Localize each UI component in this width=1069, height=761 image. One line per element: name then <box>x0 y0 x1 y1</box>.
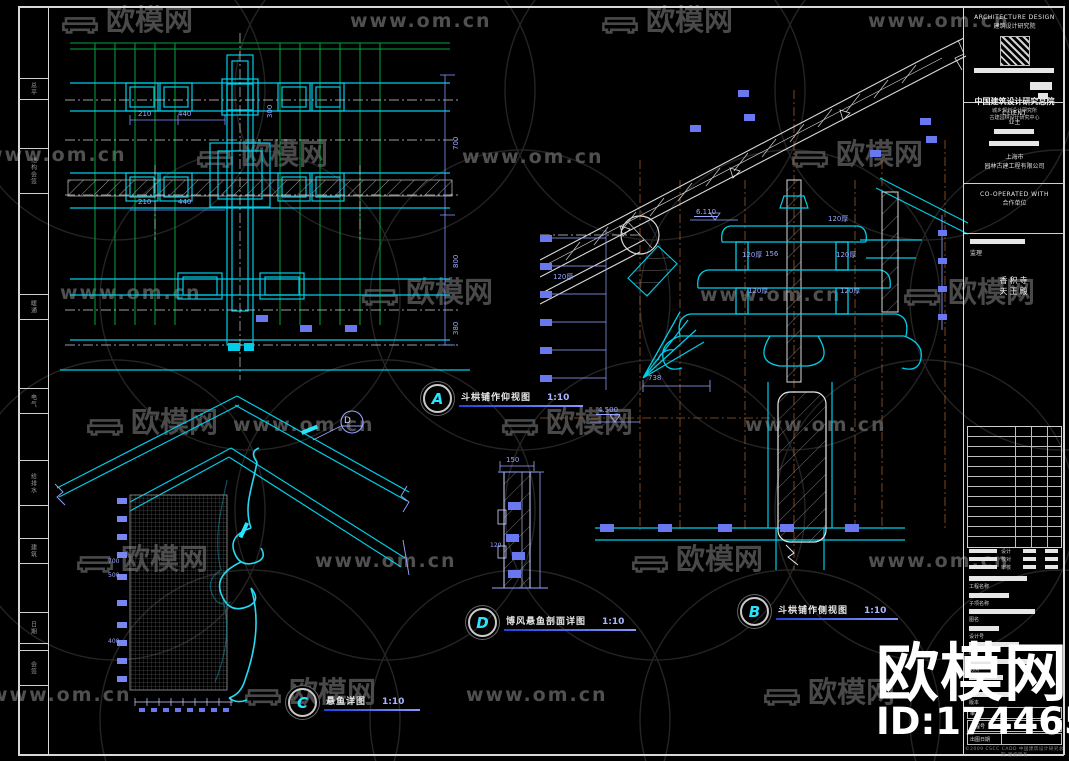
callout-d-letter: D <box>344 416 351 426</box>
margin-cell-label: 会签 <box>29 661 38 675</box>
margin-cell-label: 总平 <box>29 82 38 96</box>
frame-bottom <box>18 754 1064 756</box>
field-row: 工程名称 <box>967 574 1062 590</box>
field-label: 图名 <box>969 616 979 623</box>
titleblock-coop-section: CO-OPERATED WITH 合作单位 <box>964 184 1065 234</box>
margin-cell-label: 结构会签 <box>29 157 38 185</box>
field-label: 工程名称 <box>969 583 989 590</box>
detail-label-d: D 博风悬鱼剖面详图 1:10 <box>468 608 634 637</box>
titleblock-firm-section: ARCHITECTURE DESIGN 建筑设计研究院 中国建筑设计研究总院 城… <box>964 6 1065 103</box>
dim-b-thk1: 120厚 <box>828 214 848 224</box>
dim-a-210: 210 <box>138 110 151 118</box>
detail-bubble-a: A <box>423 384 452 413</box>
dim-a-380: 380 <box>452 322 460 335</box>
drawing-a-bracket-plan <box>60 25 480 390</box>
margin-cell: 总平 <box>18 78 48 100</box>
field-row: 比例 <box>967 657 1062 673</box>
field-label: 版本 <box>969 699 979 706</box>
field-row: 图号 <box>967 640 1062 656</box>
margin-cell-label: 日期 <box>29 621 38 635</box>
dim-a-440: 440 <box>178 110 191 118</box>
detail-label-c: C 悬鱼详图 1:10 <box>288 688 418 717</box>
cad-sheet: 欧模网www.om.cn欧模网www.om.cnwww.om.cn欧模网www.… <box>0 0 1069 761</box>
field-label: 设计号 <box>969 633 984 640</box>
frame-top <box>18 6 1064 8</box>
field-row: 子项名称 <box>967 591 1062 607</box>
field-row: 设计号 <box>967 624 1062 640</box>
margin-cell-label: 建筑 <box>29 544 38 558</box>
drawing-d-bargeboard-section <box>470 450 580 610</box>
margin-cell: 结构会签 <box>18 148 48 194</box>
titleblock-client-section: CLIENT 业主 上海市 园林古建工程有限公司 <box>964 103 1065 184</box>
drawing-c-gable-detail <box>55 390 415 720</box>
detail-title-d: 博风悬鱼剖面详图 <box>506 614 586 627</box>
dim-c-500: 500 <box>108 572 119 579</box>
detail-label-b: B 斗栱铺作侧视图 1:10 <box>740 597 896 626</box>
detail-bubble-d: D <box>468 608 497 637</box>
firm-logo <box>1000 36 1030 66</box>
dim-b-738: 738 <box>648 374 661 382</box>
margin-cell: 给排水 <box>18 460 48 506</box>
margin-cell: 会签 <box>18 650 48 686</box>
coop-header-en: CO-OPERATED WITH <box>964 191 1065 198</box>
client-name2: 园林古建工程有限公司 <box>964 161 1065 170</box>
detail-title-b: 斗栱铺作侧视图 <box>778 603 848 616</box>
supervisor-label: 监理 <box>964 248 1065 257</box>
dim-d-150: 150 <box>506 456 519 464</box>
dim-a-800: 800 <box>452 255 460 268</box>
bottom-box-row: 审定 <box>967 707 1062 719</box>
detail-scale-c: 1:10 <box>382 697 404 707</box>
margin-strip-divider <box>48 6 49 755</box>
dim-a-210b: 210 <box>138 198 151 206</box>
detail-scale-d: 1:10 <box>602 617 624 627</box>
firm-header-en: ARCHITECTURE DESIGN <box>964 14 1065 21</box>
detail-title-a: 斗栱铺作仰视图 <box>461 390 531 403</box>
copyright-line: ©2009 CSCC CADD 中国建筑设计研究总院 版权所有 <box>964 746 1065 758</box>
titleblock-project-section: 监理 香积寺 天王殿 <box>964 234 1065 426</box>
project-name-line1: 香积寺 <box>964 275 1065 286</box>
dim-b-156: 156 <box>765 250 778 258</box>
firm-header-cn: 建筑设计研究院 <box>964 21 1065 30</box>
level-4500: 4.500 <box>596 406 620 415</box>
sign-label: 设计 <box>1001 548 1011 555</box>
coop-header-cn: 合作单位 <box>964 198 1065 207</box>
bottom-box-label: 审定 <box>968 708 1002 718</box>
detail-scale-b: 1:10 <box>864 606 886 616</box>
margin-cell-label: 电气 <box>29 394 38 408</box>
detail-bubble-c: C <box>288 688 317 717</box>
bottom-box-label: 出图日期 <box>968 734 1002 744</box>
detail-bubble-b: B <box>740 597 769 626</box>
client-header-en: CLIENT <box>964 110 1065 117</box>
margin-cell-label: 给排水 <box>29 473 38 494</box>
dim-a-700: 700 <box>452 137 460 150</box>
detail-label-a: A 斗栱铺作仰视图 1:10 <box>423 384 581 413</box>
field-label: 日期 <box>969 682 979 689</box>
field-row: 版本 <box>967 690 1062 706</box>
sign-label: 校对 <box>1001 556 1011 563</box>
sign-label: 审核 <box>1001 564 1011 571</box>
client-header-cn: 业主 <box>964 117 1065 126</box>
dim-b-thk6: 120厚 <box>553 272 573 282</box>
margin-cell: 电气 <box>18 388 48 414</box>
dim-b-thk2: 120厚 <box>836 250 856 260</box>
dim-d-120: 120 <box>490 542 501 549</box>
sign-row: 设计 <box>967 548 1062 556</box>
drawing-b-eave-section <box>540 30 968 575</box>
revision-table <box>967 426 1062 548</box>
field-label: 子项名称 <box>969 600 989 607</box>
field-row: 图名 <box>967 607 1062 623</box>
margin-cell: 暖通 <box>18 294 48 320</box>
dim-c-400: 400 <box>108 638 119 645</box>
field-label: 图号 <box>969 649 979 656</box>
bottom-box-row: 出图日期 <box>967 733 1062 745</box>
sign-row: 审核 <box>967 564 1062 572</box>
margin-cell: 建筑 <box>18 538 48 564</box>
level-6110: 6.110 <box>694 208 718 217</box>
margin-cell: 日期 <box>18 612 48 644</box>
client-name1: 上海市 <box>964 152 1065 161</box>
field-row: 日期 <box>967 673 1062 689</box>
field-label: 比例 <box>969 666 979 673</box>
detail-title-c: 悬鱼详图 <box>326 694 366 707</box>
sign-row: 校对 <box>967 556 1062 564</box>
margin-cell-label: 暖通 <box>29 300 38 314</box>
bottom-box-row: 工程号 <box>967 720 1062 732</box>
dim-b-thk3: 120厚 <box>840 286 860 296</box>
dim-c-700: 700 <box>108 558 119 565</box>
dim-b-thk5: 120厚 <box>748 286 768 296</box>
bottom-box-label: 工程号 <box>968 721 1002 731</box>
dim-a-300: 300 <box>266 105 274 118</box>
dim-b-thk4: 120厚 <box>742 250 762 260</box>
project-name-line2: 天王殿 <box>964 286 1065 297</box>
detail-scale-a: 1:10 <box>547 393 569 403</box>
dim-a-440b: 440 <box>178 198 191 206</box>
title-block: ARCHITECTURE DESIGN 建筑设计研究院 中国建筑设计研究总院 城… <box>963 6 1065 755</box>
